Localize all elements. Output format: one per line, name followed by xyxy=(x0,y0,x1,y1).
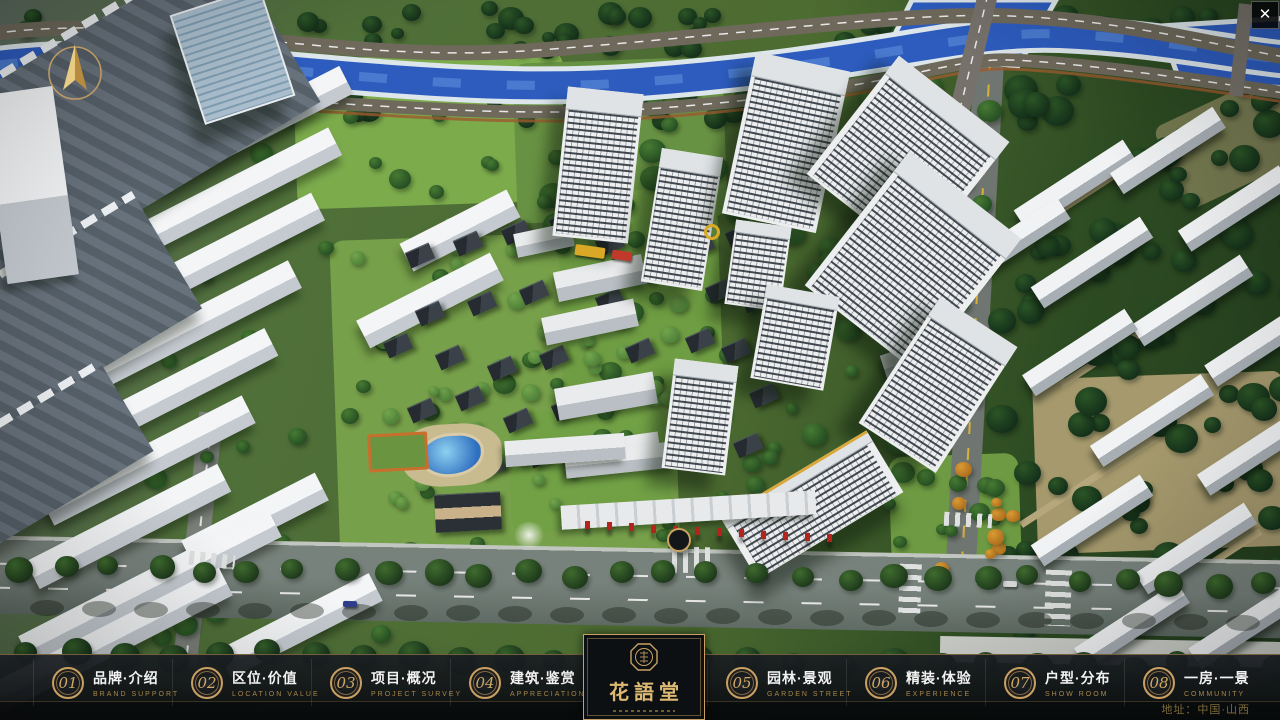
red-flag xyxy=(783,532,788,540)
red-flag xyxy=(761,531,766,539)
street-tree xyxy=(425,559,454,585)
tree xyxy=(1075,387,1107,416)
street-tree xyxy=(880,564,907,589)
tree xyxy=(371,625,392,643)
red-flag xyxy=(717,528,722,536)
tree xyxy=(1204,417,1221,433)
tree xyxy=(742,455,762,473)
tree-shadow xyxy=(1174,614,1208,630)
tree xyxy=(986,405,1018,433)
tree-shadow xyxy=(1226,615,1260,631)
nav-label-en: COMMUNITY xyxy=(1184,691,1250,698)
nav-number-badge: 03 xyxy=(330,667,362,699)
tree xyxy=(1169,167,1186,182)
nav-item-4[interactable]: 04建筑·鉴赏APPRECIATION xyxy=(450,659,589,706)
tree xyxy=(537,195,552,208)
tree-shadow xyxy=(550,607,584,623)
tree xyxy=(1117,359,1140,380)
tree xyxy=(802,423,827,445)
project-logo-title: 花語堂 xyxy=(604,676,684,705)
nav-item-7[interactable]: 07户型·分布SHOW ROOM xyxy=(985,659,1124,706)
nav-label-en: SHOW ROOM xyxy=(1045,691,1111,698)
tree xyxy=(356,380,371,394)
tree xyxy=(985,479,1005,497)
red-flag xyxy=(739,529,744,537)
nav-label-cn: 精装·体验 xyxy=(906,668,972,688)
tree-shadow xyxy=(914,611,948,627)
tree xyxy=(429,185,444,199)
nav-label-cn: 园林·景观 xyxy=(767,668,853,688)
tree xyxy=(583,351,601,367)
nav-label-en: APPRECIATION xyxy=(510,691,586,698)
highrise-tower xyxy=(552,86,643,243)
tree xyxy=(660,326,679,343)
red-flag xyxy=(827,534,832,542)
street-tree xyxy=(5,557,33,582)
street-tree xyxy=(335,558,360,581)
tree xyxy=(1048,477,1068,495)
street-tree xyxy=(1069,571,1091,591)
red-flag xyxy=(607,522,612,530)
red-flag xyxy=(651,525,656,533)
street-tree xyxy=(792,567,814,587)
street-tree xyxy=(1251,572,1276,594)
tree xyxy=(318,241,334,255)
street-tree xyxy=(1116,569,1140,591)
street-tree xyxy=(465,564,492,588)
tree-shadow xyxy=(654,608,688,624)
street-tree xyxy=(233,561,258,584)
address-text: 地址：中国·山西 xyxy=(1161,701,1250,717)
nav-label-en: PROJECT SURVEY xyxy=(371,691,462,698)
tree xyxy=(1068,412,1095,437)
logo-subtitle-line xyxy=(613,710,675,712)
red-flag xyxy=(629,523,634,531)
tree xyxy=(1181,193,1199,209)
nav-label-en: GARDEN STREET xyxy=(767,691,853,698)
tree xyxy=(1171,249,1197,272)
tree-shadow xyxy=(134,602,168,618)
car xyxy=(1003,581,1017,587)
tree xyxy=(955,462,972,477)
tree-shadow xyxy=(82,601,116,617)
tree xyxy=(845,365,859,377)
nav-number-badge: 06 xyxy=(865,667,897,699)
seal-emblem-icon xyxy=(629,642,659,672)
orange-roof-building xyxy=(367,431,429,472)
crosswalk xyxy=(944,512,993,528)
tree xyxy=(1159,179,1184,201)
tree xyxy=(762,450,778,464)
tree xyxy=(1219,385,1239,403)
car xyxy=(343,601,357,607)
street-tree xyxy=(193,562,216,583)
highrise-tower xyxy=(750,284,839,390)
red-flag xyxy=(695,527,700,535)
tree xyxy=(532,474,544,485)
highrise-tower xyxy=(662,359,739,476)
tree xyxy=(1141,242,1161,260)
close-button[interactable]: ✕ xyxy=(1251,1,1279,29)
tree xyxy=(1251,397,1277,421)
nav-number-badge: 05 xyxy=(726,667,758,699)
street-tree xyxy=(515,559,542,583)
nav-number-badge: 08 xyxy=(1143,667,1175,699)
courtyard-villa xyxy=(721,337,752,363)
tree xyxy=(917,469,935,485)
street-tree xyxy=(97,556,118,575)
nav-label-en: EXPERIENCE xyxy=(906,691,972,698)
gold-ring-feature xyxy=(704,224,720,240)
tree xyxy=(627,231,646,248)
street-tree xyxy=(1206,574,1233,599)
street-tree xyxy=(150,555,176,578)
tree-shadow xyxy=(810,610,844,626)
nav-number-badge: 07 xyxy=(1004,667,1036,699)
tree xyxy=(382,408,399,424)
tree xyxy=(987,529,1004,544)
street-tree xyxy=(694,561,718,582)
tree-shadow xyxy=(966,612,1000,628)
tree xyxy=(200,451,214,464)
tree xyxy=(350,251,365,265)
nav-item-6[interactable]: 06精装·体验EXPERIENCE xyxy=(846,659,985,706)
entrance-emblem-disc xyxy=(667,528,691,552)
street-tree xyxy=(1016,565,1038,584)
tree-shadow xyxy=(394,605,428,621)
street-tree xyxy=(839,570,862,591)
presentation-screen: ✕ 01品牌·介绍BRAND SUPPORT02区位·价值LOCATION VA… xyxy=(0,0,1280,720)
tree xyxy=(991,508,1006,521)
tree-shadow xyxy=(498,606,532,622)
street-tree xyxy=(562,566,587,589)
nav-label-cn: 项目·概况 xyxy=(371,668,462,688)
nav-label-cn: 建筑·鉴赏 xyxy=(510,668,586,688)
tree xyxy=(985,549,996,559)
tree xyxy=(1017,299,1044,323)
tree xyxy=(288,428,307,445)
nav-label-cn: 户型·分布 xyxy=(1045,668,1111,688)
red-flag xyxy=(585,521,590,529)
nav-number-badge: 02 xyxy=(191,667,223,699)
nav-label-cn: 区位·价值 xyxy=(232,668,320,688)
street-tree xyxy=(375,561,403,586)
tree-shadow xyxy=(238,603,272,619)
red-flag xyxy=(805,533,810,541)
tree xyxy=(1258,506,1280,531)
nav-label-en: LOCATION VALUE xyxy=(232,691,320,698)
compass-icon xyxy=(42,36,108,106)
nav-number-badge: 01 xyxy=(52,667,84,699)
tree xyxy=(945,525,958,537)
tree xyxy=(389,169,411,189)
tree-shadow xyxy=(1070,613,1104,629)
tree xyxy=(236,440,250,453)
nav-number-badge: 04 xyxy=(469,667,501,699)
tree xyxy=(786,402,799,413)
nav-item-5[interactable]: 05园林·景观GARDEN STREET xyxy=(707,659,846,706)
tree xyxy=(1006,510,1020,522)
nav-item-3[interactable]: 03项目·概况PROJECT SURVEY xyxy=(311,659,450,706)
entry-gatehouse xyxy=(434,491,502,532)
nav-item-1[interactable]: 01品牌·介绍BRAND SUPPORT xyxy=(33,659,172,706)
tree xyxy=(893,536,907,548)
nav-label-cn: 一房·一景 xyxy=(1184,668,1250,688)
tree xyxy=(746,476,765,493)
street-tree xyxy=(55,556,78,577)
light-flare xyxy=(512,522,546,548)
tree xyxy=(1165,424,1197,453)
nav-item-2[interactable]: 02区位·价值LOCATION VALUE xyxy=(172,659,311,706)
nav-item-8[interactable]: 08一房·一景COMMUNITY xyxy=(1124,659,1263,706)
project-logo-panel[interactable]: 花語堂 xyxy=(583,634,705,720)
courtyard-villa xyxy=(733,432,764,458)
nav-label-en: BRAND SUPPORT xyxy=(93,691,179,698)
tree xyxy=(991,498,1002,508)
tree xyxy=(396,497,409,508)
courtyard-villa xyxy=(749,382,780,408)
nav-label-cn: 品牌·介绍 xyxy=(93,668,179,688)
tree-shadow xyxy=(758,609,792,625)
street-tree xyxy=(651,560,675,582)
